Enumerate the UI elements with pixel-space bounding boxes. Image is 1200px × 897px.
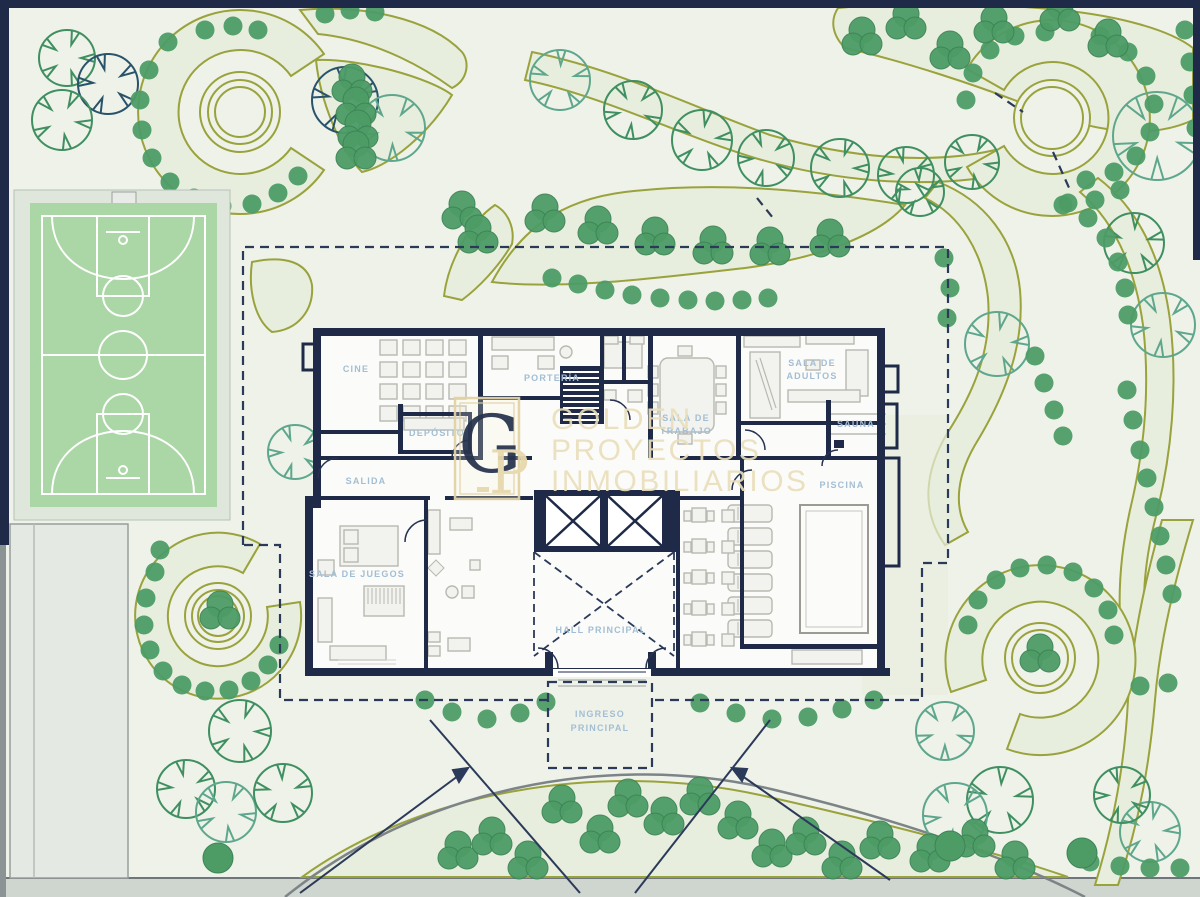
shrub-dot-icon [1077,171,1096,190]
shrub-dot-icon [1157,556,1176,575]
chair [707,511,714,521]
bush-circle [736,817,758,839]
room-label-ingreso-1: INGRESO [575,709,625,719]
shrub-dot-icon [941,279,960,298]
shrub-dot-icon [243,195,262,214]
shrub-dot-icon [1145,95,1164,114]
watermark-monogram-p: P [489,438,529,508]
chair [428,646,440,656]
chair [716,384,726,396]
shrub-dot-icon [691,694,710,713]
bush-circle [948,47,970,69]
bush-circle [1038,650,1060,672]
site-plan-drawing: CINE PORTERÍA DEPÓSITO SALIDA SALA DE TR… [0,0,1200,897]
shrub-dot-icon [1138,469,1157,488]
chair [716,366,726,378]
shrub-dot-icon [1171,859,1190,878]
room-label-cine: CINE [343,364,369,374]
elevator-core [534,490,680,552]
shrub-dot-icon [706,292,725,311]
cinema-seat [426,362,443,377]
shrub-dot-icon [135,616,154,635]
bush-blob-icon [935,831,965,861]
stool [470,560,480,570]
watermark-line-2: PROYECTOS [551,434,761,467]
bush-circle [626,795,648,817]
shrub-dot-icon [1097,229,1116,248]
court-bench [112,192,136,204]
shrub-dot-icon [1035,374,1054,393]
bush-circle [711,242,733,264]
room-label-porteria: PORTERÍA [524,373,580,383]
sofa [330,646,386,660]
chair [684,573,691,583]
street-band-bottom [0,878,1200,897]
bench [722,634,734,646]
cinema-seat [403,384,420,399]
room-label-piscina: PISCINA [820,480,865,490]
shrub-dot-icon [220,681,239,700]
shrub-dot-icon [1141,123,1160,142]
chair [678,346,692,356]
wall-segment [826,400,831,458]
cinema-seat [380,362,397,377]
wall-segment [313,328,885,336]
cinema-seat [380,406,397,421]
table [448,638,470,651]
shrub-dot-icon [1105,626,1124,645]
frame-right [1193,0,1200,260]
shrub-dot-icon [1141,859,1160,878]
bush-circle [354,147,376,169]
cinema-seat [403,340,420,355]
shrub-dot-icon [799,708,818,727]
room-label-sala-adultos-1: SALA DE [788,358,836,368]
shrub-dot-icon [173,676,192,695]
bush-circle [598,831,620,853]
shrub-dot-icon [651,289,670,308]
shrub-dot-icon [1159,674,1178,693]
watermark-line-1: GOLDEN [551,403,693,436]
island-top-left [200,72,280,152]
driveway-left [10,524,128,878]
cinema-seat [426,384,443,399]
shrub-dot-icon [727,704,746,723]
chair [707,604,714,614]
chair [684,604,691,614]
side-table [560,346,572,358]
shrub-dot-icon [443,703,462,722]
frame-top [0,0,1200,8]
watermark-logo: G P [455,398,529,508]
shrub-dot-icon [1038,556,1057,575]
chair [684,511,691,521]
shrub-dot-icon [161,173,180,192]
shrub-dot-icon [1131,677,1150,696]
shrub-dot-icon [242,672,261,691]
wall-segment [424,500,428,672]
shrub-dot-icon [1054,427,1073,446]
fixture [630,336,644,344]
room-label-ingreso-2: PRINCIPAL [571,723,630,733]
site-plan-page: CINE PORTERÍA DEPÓSITO SALIDA SALA DE TR… [0,0,1200,897]
bush-circle [804,833,826,855]
bush-circle [904,17,926,39]
bush-blob-icon [203,843,233,873]
shrub-dot-icon [537,693,556,712]
cinema-seat [380,384,397,399]
fixture [604,390,616,400]
bush-circle [1013,857,1035,879]
bush-circle [596,222,618,244]
cafe-table [692,632,706,646]
shrub-dot-icon [833,700,852,719]
chair [707,635,714,645]
bush-circle [840,857,862,879]
shrub-dot-icon [1137,67,1156,86]
shrub-dot-icon [259,656,278,675]
bush-circle [662,813,684,835]
cafe-table [692,570,706,584]
cinema-seat [380,340,397,355]
shrub-dot-icon [131,91,150,110]
shrub-dot-icon [1145,498,1164,517]
bench [722,541,734,553]
frame-left [0,0,9,545]
coffee-table [450,518,472,530]
room-label-sauna: SAUNA [837,419,875,429]
shrub-dot-icon [1118,381,1137,400]
chair [684,542,691,552]
shrub-dot-icon [249,21,268,40]
shrub-dot-icon [969,591,988,610]
room-label-sala-adultos-2: ADULTOS [786,371,837,381]
shrub-dot-icon [623,286,642,305]
cafe-table [692,508,706,522]
bush-circle [992,21,1014,43]
shrub-dot-icon [1011,559,1030,578]
shrub-dot-icon [1127,147,1146,166]
shrub-dot-icon [679,291,698,310]
shrub-dot-icon [137,589,156,608]
cinema-seat [426,340,443,355]
shrub-dot-icon [196,21,215,40]
shrub-dot-icon [1176,21,1195,40]
shrub-dot-icon [154,662,173,681]
bush-circle [526,857,548,879]
wall-segment [398,404,403,454]
shrub-dot-icon [1163,585,1182,604]
shrub-dot-icon [146,563,165,582]
watermark-monogram-bar [477,487,489,492]
wall-segment [622,332,626,382]
shrub-dot-icon [1099,601,1118,620]
sofa [846,350,868,396]
chair [707,573,714,583]
shrub-dot-icon [269,184,288,203]
sofa [318,598,332,642]
sofa [492,337,554,350]
bush-circle [560,801,582,823]
shrub-dot-icon [1105,163,1124,182]
cinema-seat [449,340,466,355]
wall-segment [313,430,403,434]
shrub-dot-icon [151,541,170,560]
shrub-dot-icon [987,571,1006,590]
room-label-sala-juegos: SALA DE JUEGOS [309,569,405,579]
shrub-dot-icon [957,91,976,110]
bush-circle [1106,35,1128,57]
bush-circle [973,835,995,857]
cafe-table [692,601,706,615]
shrub-dot-icon [759,289,778,308]
chair [707,542,714,552]
shrub-dot-icon [1109,253,1128,272]
shrub-dot-icon [140,61,159,80]
shrub-dot-icon [543,269,562,288]
shrub-dot-icon [1086,191,1105,210]
shrub-dot-icon [1131,441,1150,460]
bush-blob-icon [1067,838,1097,868]
shrub-dot-icon [224,17,243,36]
cushion [344,548,358,562]
shrub-dot-icon [159,33,178,52]
bush-circle [543,210,565,232]
shrub-dot-icon [1111,181,1130,200]
cushion [344,530,358,544]
armchair [492,356,508,369]
shrub-dot-icon [478,710,497,729]
sofa [788,390,860,402]
shrub-dot-icon [511,704,530,723]
cinema-seat [403,362,420,377]
shrub-dot-icon [569,275,588,294]
bush-circle [698,793,720,815]
bench [722,572,734,584]
shrub-dot-icon [196,682,215,701]
bush-circle [218,607,240,629]
shrub-dot-icon [1151,527,1170,546]
bush-circle [860,33,882,55]
shrub-dot-icon [959,616,978,635]
bench [722,603,734,615]
sauna-stove [834,440,844,448]
chair [684,635,691,645]
sofa [428,510,440,554]
bush-circle [878,837,900,859]
basketball-court [14,190,230,520]
shrub-dot-icon [133,121,152,140]
chair [716,402,726,414]
shrub-dot-icon [1111,857,1130,876]
chair [428,632,440,642]
bench [722,510,734,522]
bush-circle [1058,9,1080,31]
frame-left-lower [0,545,6,897]
shrub-dot-icon [1116,279,1135,298]
shrub-dot-icon [143,149,162,168]
island-top-right [1014,80,1090,156]
armchair [538,356,554,369]
fixture [628,390,642,402]
building-floor-plan: CINE PORTERÍA DEPÓSITO SALIDA SALA DE TR… [303,328,899,733]
wall-segment [545,652,553,676]
wall-segment [305,500,313,676]
shrub-dot-icon [1079,209,1098,228]
fixture [604,336,618,344]
shrub-dot-icon [935,249,954,268]
shrub-dot-icon [733,291,752,310]
shrub-dot-icon [596,281,615,300]
shrub-dot-icon [1119,306,1138,325]
cinema-seat [449,362,466,377]
bush-circle [653,233,675,255]
bush-circle [490,833,512,855]
room-label-salida: SALIDA [346,476,387,486]
terrace-sofa [792,650,862,664]
wall-segment [740,644,885,649]
shrub-dot-icon [1085,579,1104,598]
shrub-dot-icon [1045,401,1064,420]
shrub-dot-icon [1124,411,1143,430]
cabinet [744,336,800,347]
shrub-dot-icon [141,641,160,660]
shrub-dot-icon [1064,563,1083,582]
shrub-dot-icon [1054,196,1073,215]
bush-circle [476,231,498,253]
watermark-line-3: INMOBILIARIOS [551,465,809,498]
round-chair [446,586,458,598]
wall-segment [305,496,430,500]
shrub-dot-icon [289,167,308,186]
cafe-table [692,539,706,553]
shrub-dot-icon [1026,347,1045,366]
room-label-hall: HALL PRINCIPAL [556,625,647,635]
side-table [462,586,474,598]
